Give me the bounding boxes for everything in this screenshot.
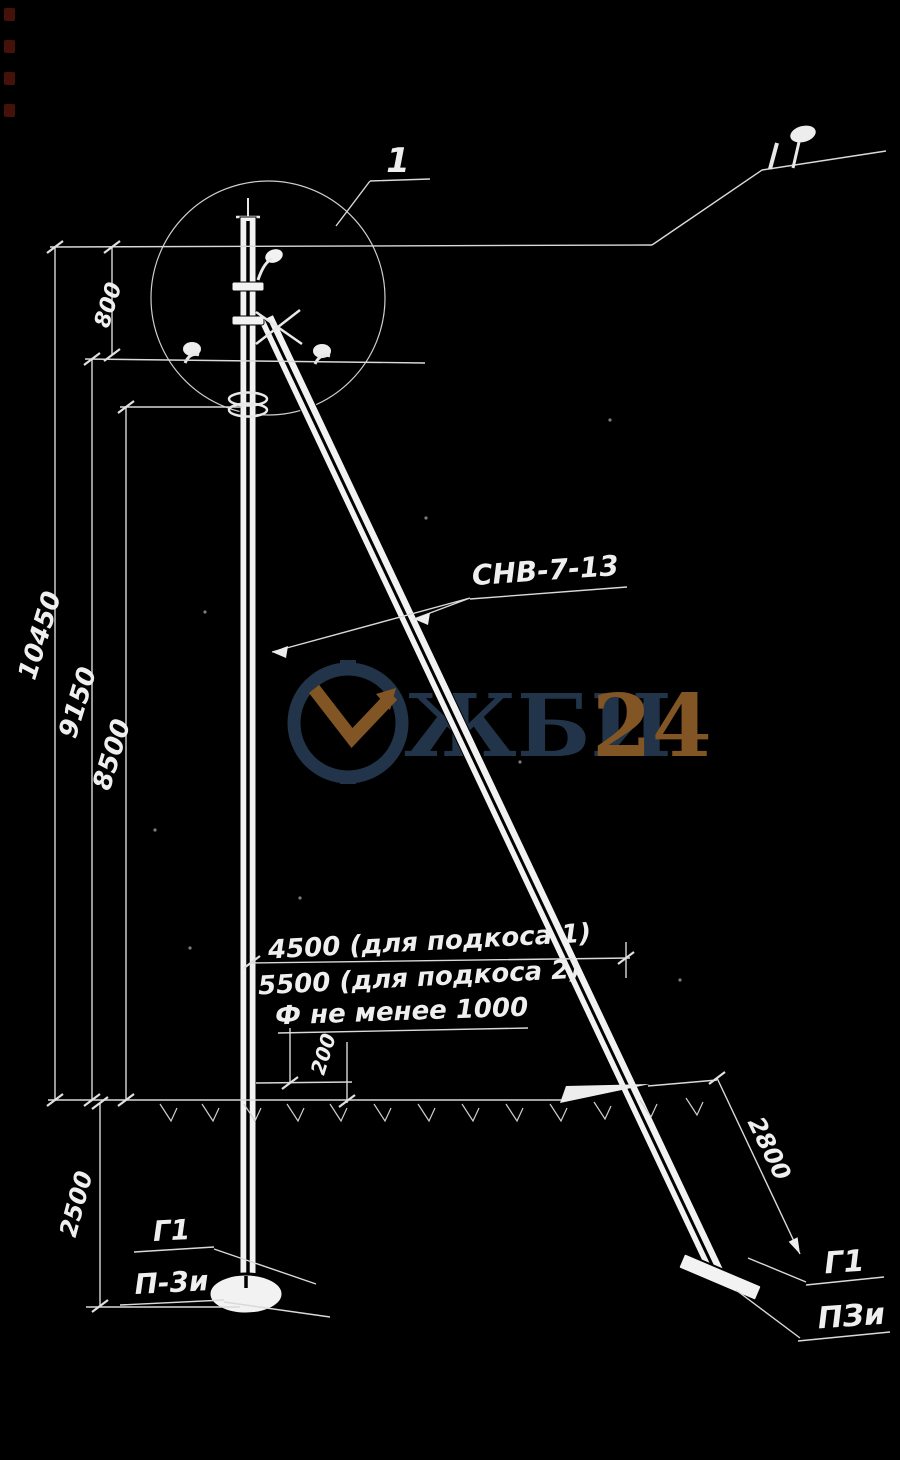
dim-mid-height-label: 9150 xyxy=(53,664,103,742)
strut-heel-plate xyxy=(678,1253,762,1301)
red-edge-marks xyxy=(4,8,15,117)
watermark-ring-notch-top xyxy=(340,660,356,671)
dim-embed-depth-label: 2500 xyxy=(54,1168,98,1240)
right-anchor-plate-label: ПЗи xyxy=(816,1297,886,1337)
pole-clamp-band-upper xyxy=(232,282,264,291)
dim-hook-height-label: 8500 xyxy=(87,716,137,794)
bracket-hook-icon xyxy=(788,123,817,145)
technical-drawing: ЖБИ 24 xyxy=(0,0,900,1460)
side-bracket xyxy=(652,123,886,245)
detail-callout-label: 1 xyxy=(386,141,410,181)
part-label: СНВ-7-13 xyxy=(471,549,620,592)
ground-line xyxy=(48,1080,717,1121)
left-anchor-plate-label: П-3и xyxy=(134,1264,210,1301)
right-anchor-mark-label: Г1 xyxy=(823,1244,865,1282)
detail-circle xyxy=(151,181,385,415)
watermark-check-icon xyxy=(318,694,388,738)
dim-heel-offset-label: 200 xyxy=(306,1030,341,1077)
watermark-ring-notch-bottom xyxy=(340,773,356,784)
watermark-suffix-text: 24 xyxy=(592,676,712,777)
pole-clamp-band-lower xyxy=(232,316,264,325)
strut xyxy=(259,315,762,1301)
dim-top-offset-label: 800 xyxy=(90,279,127,330)
watermark: ЖБИ 24 xyxy=(294,660,712,784)
left-anchor-mark-label: Г1 xyxy=(152,1213,191,1248)
dim-total-height-label: 10450 xyxy=(13,588,68,683)
insulator-hook-top xyxy=(258,247,285,280)
